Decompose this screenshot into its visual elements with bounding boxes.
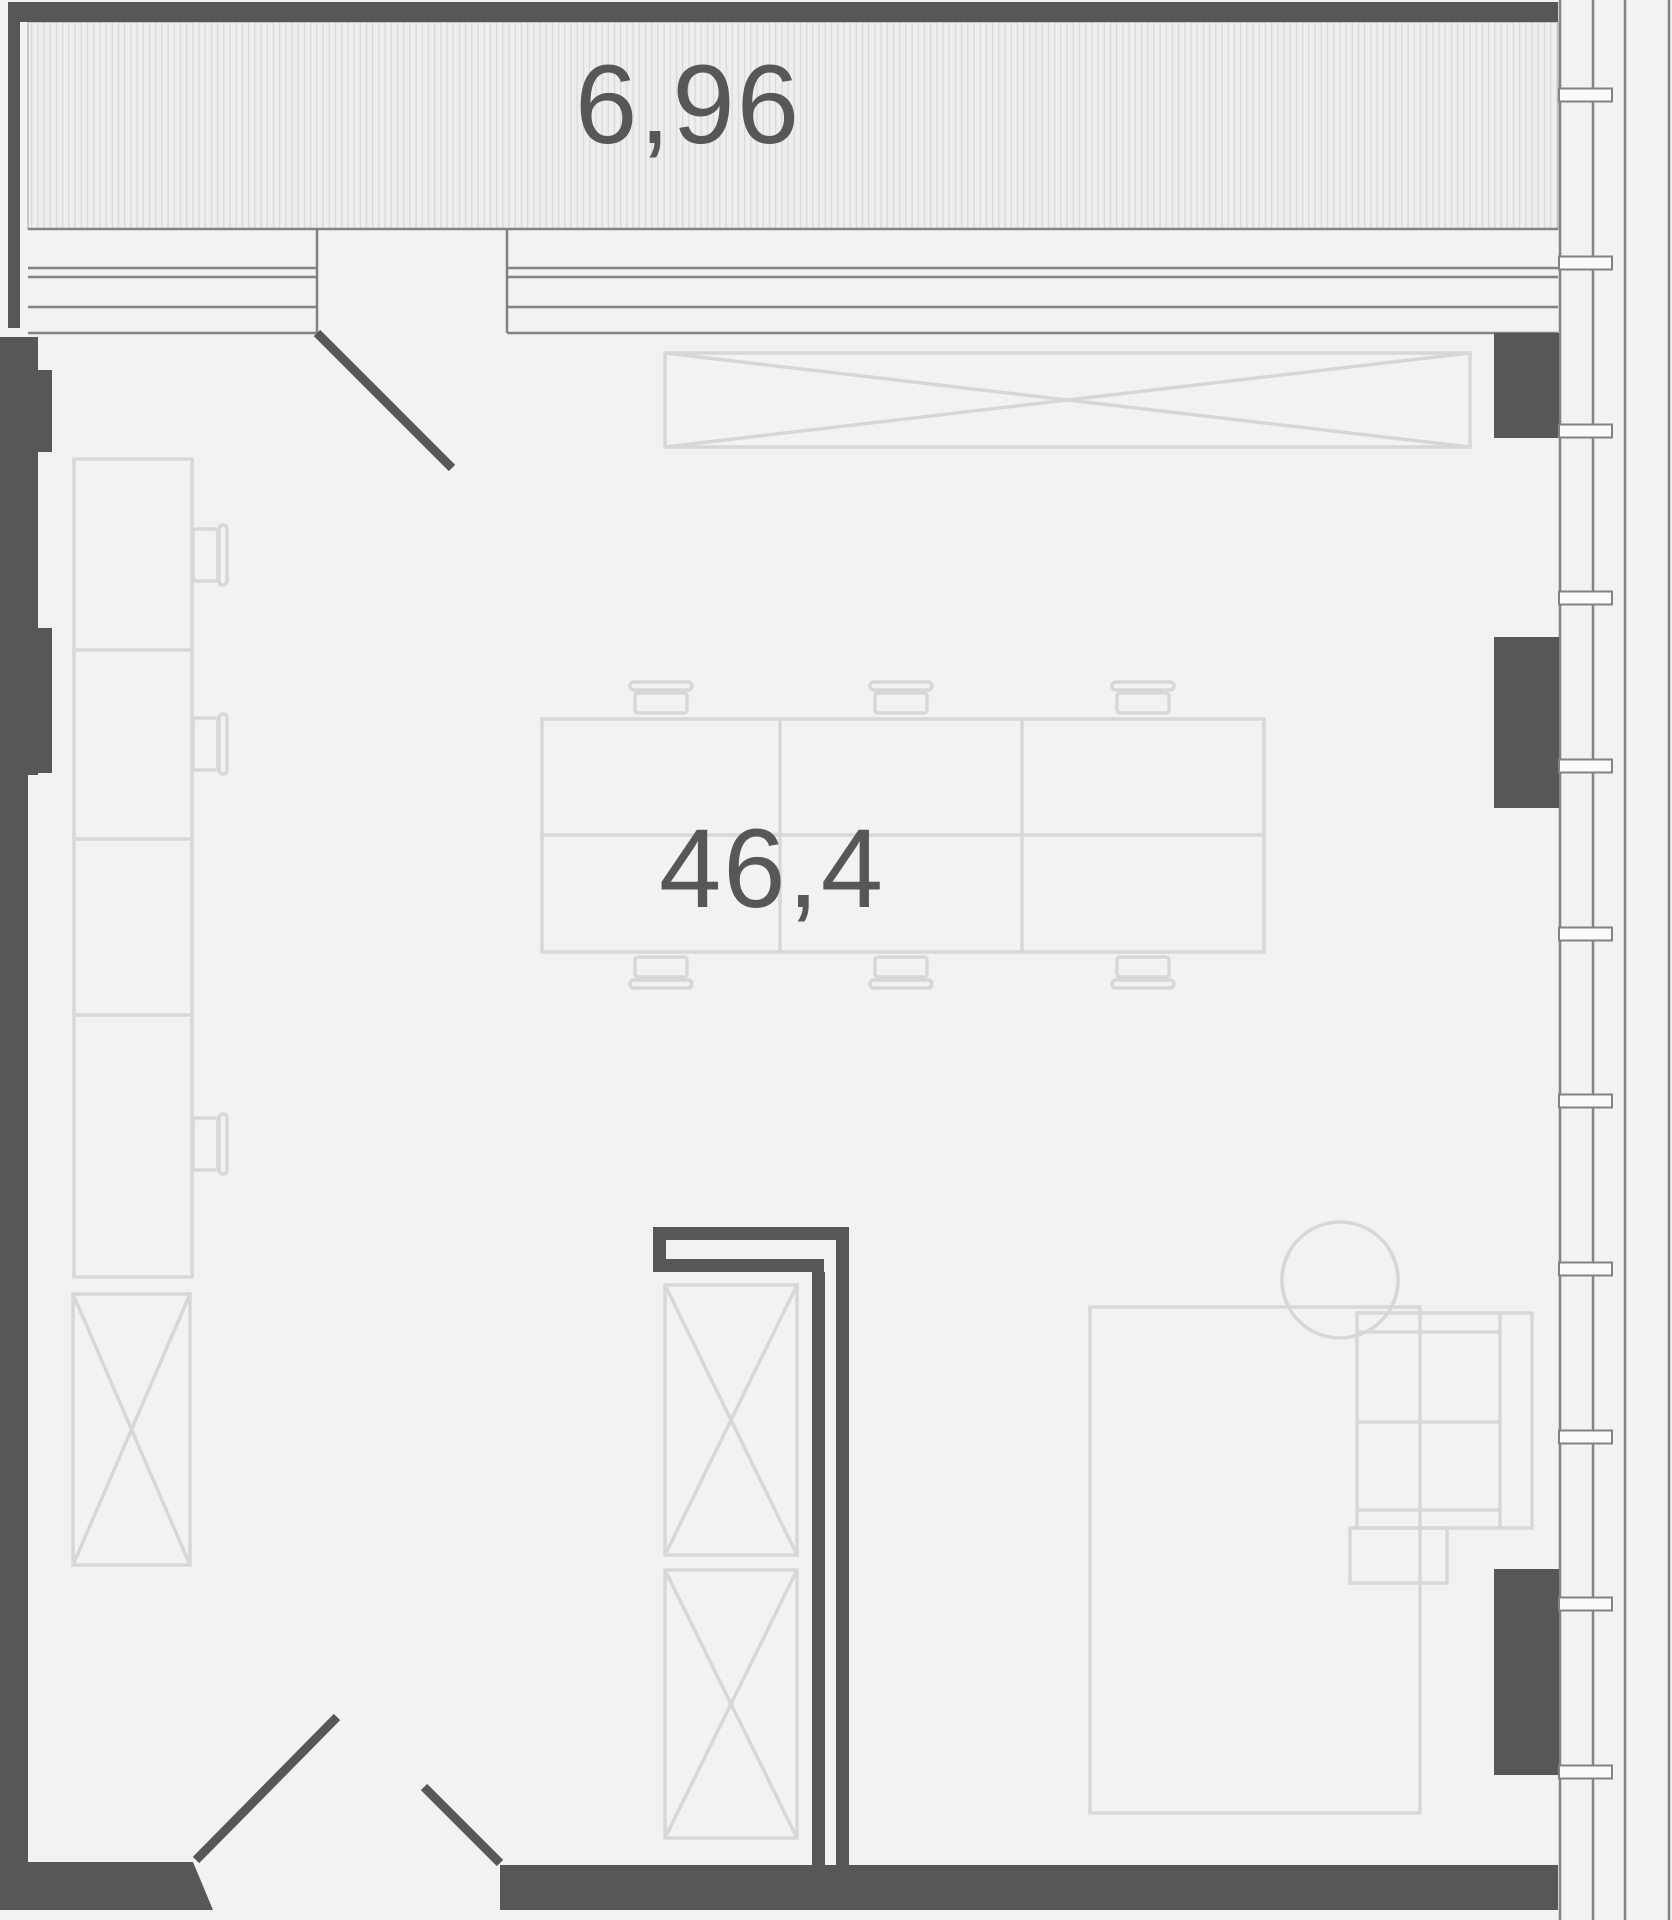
balcony-area-label: 6,96 [575, 42, 801, 167]
wall-partition-right [836, 1240, 849, 1865]
wall-right-pier-1 [1494, 333, 1559, 438]
window-sill-tick [1559, 1431, 1612, 1444]
wall-partition-left [812, 1272, 825, 1865]
floor-plan: 6,96 46,4 [0, 0, 1672, 1920]
room-area-label: 46,4 [659, 806, 885, 931]
wall-bottom-left [0, 1862, 213, 1910]
wall-left-lower [0, 775, 28, 1862]
wall-partition-cap-inner [666, 1259, 824, 1272]
window-sill-tick [1559, 89, 1612, 102]
wall-left-upper [0, 337, 38, 775]
wall-bottom-right [500, 1865, 1558, 1910]
wall-right-pier-3 [1494, 1569, 1559, 1775]
window-sill-tick [1559, 1095, 1612, 1108]
wall-top [8, 2, 1558, 22]
wall-partition-cap-left [653, 1240, 666, 1272]
wall-partition-cap-outer [653, 1227, 849, 1240]
window-sill-tick [1559, 592, 1612, 605]
floor-plan-drawing: 6,96 46,4 [0, 0, 1672, 1920]
window-sill-tick [1559, 928, 1612, 941]
wall-right-pier-2 [1494, 637, 1559, 808]
window-sill-tick [1559, 1766, 1612, 1779]
wall-left-pier-1 [38, 370, 52, 452]
wall-left-pier-2 [38, 628, 52, 773]
wall-balcony-left [8, 2, 20, 328]
window-sill-tick [1559, 1263, 1612, 1276]
window-sill-tick [1559, 1598, 1612, 1611]
window-sill-tick [1559, 425, 1612, 438]
window-sill-tick [1559, 257, 1612, 270]
window-sill-tick [1559, 760, 1612, 773]
